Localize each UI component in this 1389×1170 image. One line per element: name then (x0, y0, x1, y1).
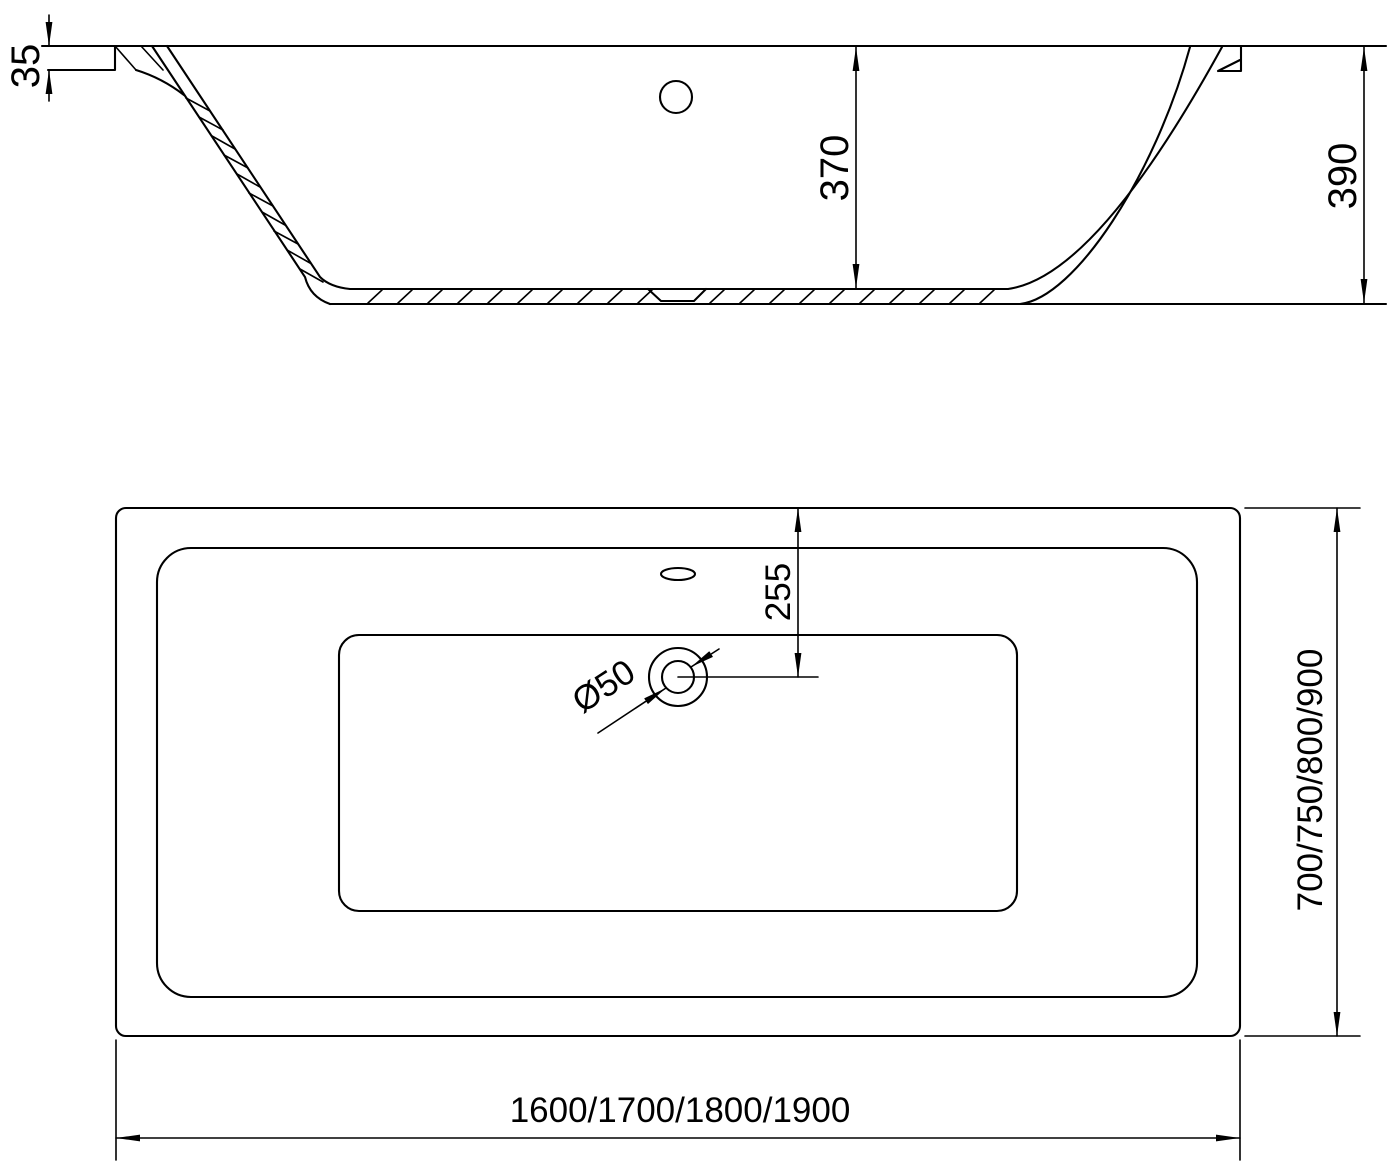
dim-rim-thickness: 35 (4, 15, 49, 101)
plan-rim-inner-edge (157, 548, 1197, 997)
dim-overall-height-label: 390 (1321, 143, 1365, 210)
section-view: 35 370 390 (4, 15, 1386, 304)
dim-inner-depth: 370 (813, 47, 857, 288)
section-left-wall-inner-edge (167, 46, 350, 289)
dim-inner-depth-label: 370 (813, 135, 857, 202)
dim-drain-offset: 255 (678, 508, 818, 677)
left-wall-hatch (115, 46, 323, 282)
dim-length-options-label: 1600/1700/1800/1900 (510, 1091, 851, 1130)
dim-drain-diameter-label: Ø50 (565, 652, 642, 721)
section-right-wall-outer-curve (1020, 47, 1190, 304)
bathtub-technical-drawing: 35 370 390 255 (0, 0, 1389, 1165)
dim-length-options: 1600/1700/1800/1900 (116, 1040, 1240, 1160)
section-drain-recess (648, 289, 706, 301)
section-left-rim (48, 46, 115, 70)
dim-drain-diameter: Ø50 (565, 649, 719, 733)
overflow-hole-plan (661, 568, 695, 580)
dim-drain-offset-label: 255 (759, 563, 798, 621)
dim-rim-thickness-label: 35 (4, 44, 48, 89)
overflow-hole-section (660, 81, 692, 113)
plan-outer-edge (116, 508, 1240, 1036)
drawing-canvas: 35 370 390 255 (0, 0, 1389, 1165)
plan-view: 255 Ø50 700/750/800/900 1600/1700/1800/1… (116, 508, 1360, 1160)
dim-width-options-label: 700/750/800/900 (1291, 649, 1330, 912)
dim-width-options: 700/750/800/900 (1245, 508, 1360, 1036)
section-left-wall-outer-edge (152, 46, 330, 304)
dim-overall-height: 390 (1321, 47, 1365, 303)
section-right-wall-inner-curve (1008, 47, 1222, 289)
